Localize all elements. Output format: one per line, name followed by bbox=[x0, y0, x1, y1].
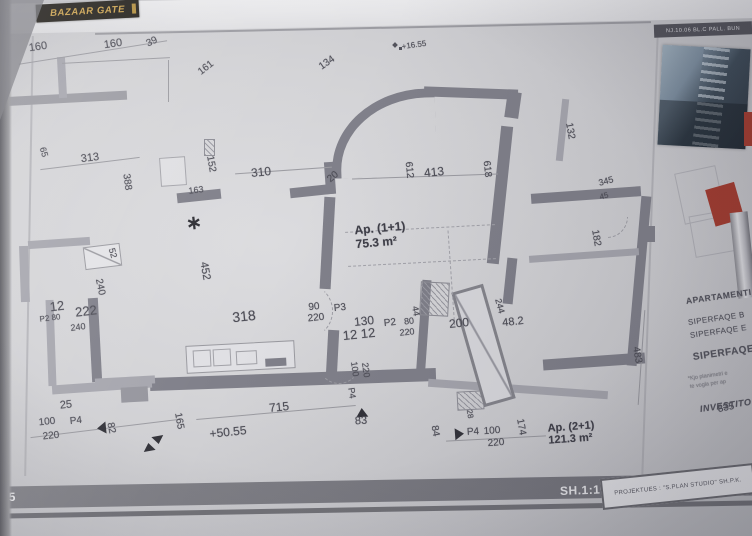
dimension-label: 160 bbox=[103, 37, 123, 51]
dimension-label: 240 bbox=[70, 321, 86, 333]
door-tag: P3 bbox=[333, 302, 346, 314]
dimension-label: 12 12 bbox=[342, 325, 376, 343]
dimension-label: 483 bbox=[630, 346, 644, 364]
dimension-label: 28 bbox=[465, 409, 475, 419]
dimension-label: 200 bbox=[448, 315, 469, 331]
dimension-label: 182 bbox=[589, 229, 603, 247]
dimension-label: 244 bbox=[493, 297, 507, 314]
dimension-label: 45 bbox=[599, 191, 610, 202]
dimension-label: 413 bbox=[423, 164, 444, 180]
dimension-label: 165 bbox=[172, 412, 186, 430]
level-label: +16.55 bbox=[401, 39, 427, 51]
plan-labels: 16016039161134+16.5531338865152310201636… bbox=[0, 0, 752, 536]
dimension-label: 220 bbox=[399, 326, 415, 338]
door-tag: P4 bbox=[346, 387, 357, 399]
dimension-label: 452 bbox=[197, 261, 212, 281]
dimension-label: 84 bbox=[429, 425, 442, 438]
dimension-label: 220 bbox=[360, 362, 372, 378]
dimension-label: 132 bbox=[563, 122, 577, 140]
door-tag: P4 bbox=[69, 415, 82, 427]
dimension-label: 152 bbox=[204, 155, 218, 173]
dimension-label: 161 bbox=[196, 59, 216, 78]
apartment2-tag: Ap. (2+1) 121.3 m² bbox=[547, 419, 595, 446]
dimension-label: 612 bbox=[403, 161, 416, 179]
dimension-label: 222 bbox=[74, 302, 97, 320]
tower-shadow bbox=[657, 100, 747, 150]
dimension-label: 618 bbox=[481, 160, 494, 178]
dimension-label: 25 bbox=[59, 398, 72, 411]
dimension-label: 65 bbox=[38, 146, 50, 158]
dimension-label: 100 bbox=[483, 425, 500, 437]
dimension-label: 715 bbox=[268, 399, 289, 415]
dimension-label: 39 bbox=[145, 35, 160, 50]
dimension-label: 83 bbox=[354, 415, 367, 428]
dimension-label: 310 bbox=[250, 164, 271, 180]
dimension-label: 163 bbox=[188, 184, 204, 196]
door-tag: P2 bbox=[383, 317, 396, 329]
dimension-label: 48.2 bbox=[502, 315, 525, 329]
dimension-label: 345 bbox=[597, 174, 614, 188]
dimension-label: 100 bbox=[38, 416, 56, 429]
photo-of-floor-plan-sheet: BAZAAR GATE NJ.10.06 BL.C PALL. BUN bbox=[0, 0, 752, 536]
door-tag: P2 80 bbox=[39, 312, 61, 323]
dimension-label: 318 bbox=[232, 307, 257, 325]
dimension-label: 313 bbox=[80, 151, 100, 165]
dimension-label: 174 bbox=[514, 418, 528, 436]
door-tag: P4 bbox=[467, 426, 480, 438]
level-label: +50.55 bbox=[209, 423, 247, 441]
building-rendering bbox=[657, 45, 750, 149]
dimension-label: 160 bbox=[28, 40, 48, 54]
dimension-label: 82 bbox=[104, 421, 117, 434]
apartment1-tag: Ap. (1+1) 75.3 m² bbox=[354, 219, 407, 251]
red-marker-sliver bbox=[744, 112, 752, 146]
dimension-label: 220 bbox=[42, 430, 60, 443]
dimension-label: 44 bbox=[410, 305, 422, 317]
floor-plan: ∗ 16016039161134+16.55313388651523102016… bbox=[0, 0, 752, 536]
dimension-label: 220 bbox=[487, 437, 504, 449]
dimension-label: 52 bbox=[107, 247, 119, 259]
dimension-label: 220 bbox=[307, 312, 325, 325]
dimension-label: 20 bbox=[325, 169, 341, 185]
dimension-label: 80 bbox=[403, 316, 414, 327]
dimension-label: 134 bbox=[317, 54, 337, 73]
dimension-label: 240 bbox=[93, 278, 107, 297]
dimension-label: 388 bbox=[120, 173, 133, 191]
designer-label: PROJEKTUES : "S.PLAN STUDIO" SH.P.K. bbox=[614, 477, 742, 496]
